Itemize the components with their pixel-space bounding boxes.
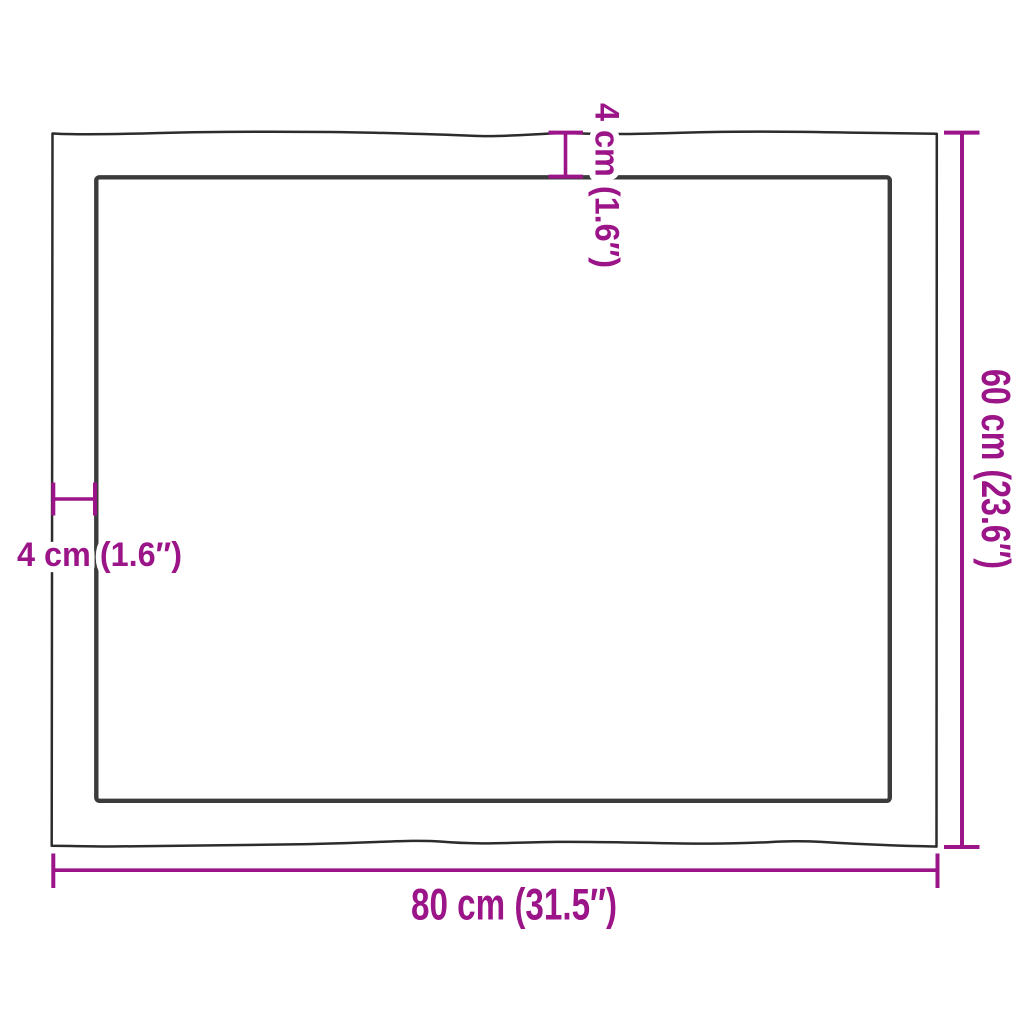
- svg-text:60 cm (23.6″): 60 cm (23.6″): [973, 369, 1019, 569]
- svg-text:4 cm (1.6″): 4 cm (1.6″): [17, 536, 182, 574]
- svg-text:4 cm (1.6″): 4 cm (1.6″): [588, 103, 626, 268]
- svg-text:80 cm (31.5″): 80 cm (31.5″): [411, 881, 617, 930]
